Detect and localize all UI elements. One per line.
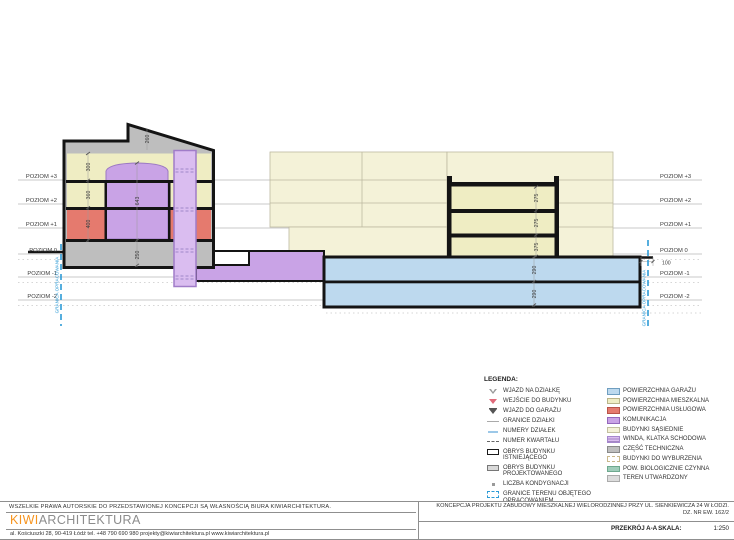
- level-label: POZIOM +2: [26, 198, 57, 204]
- titleblock-top-rule: [0, 501, 734, 502]
- legend-item: NUMERY DZIAŁEK: [486, 428, 608, 435]
- legend-item-label: WEJŚCIE DO BUDYNKU: [500, 398, 595, 405]
- residential-area-swatch: [607, 398, 620, 405]
- legend-item: GRANICE DZIAŁKI: [486, 418, 608, 425]
- legend-item: WJAZD NA DZIAŁKĘ: [486, 388, 608, 395]
- company-address: al. Kościuszki 28, 90-419 Łódź tel. +48 …: [10, 531, 269, 537]
- garage-entry-icon: [486, 408, 500, 415]
- legend-item-label: TEREN UTWARDZONY: [620, 475, 715, 482]
- legend-item: POWIERZCHNIA USŁUGOWA: [607, 407, 732, 414]
- project-line-2: DZ. NR EW. 162/2: [419, 510, 729, 517]
- legend-item: WEJŚCIE DO BUDYNKU: [486, 398, 608, 405]
- legend-item-label: BUDYNKI SĄSIEDNIE: [620, 427, 715, 434]
- level-labels-right: POZIOM +3 POZIOM +2 POZIOM +1 POZIOM 0 P…: [660, 174, 691, 300]
- legend-item: BUDYNKI DO WYBURZENIA: [607, 456, 732, 463]
- dim-garage-l2: 290: [532, 290, 538, 299]
- titleblock-left-rule-2: [6, 529, 416, 530]
- legend-item: POWIERZCHNIA MIESZKALNA: [607, 398, 732, 405]
- dim-left-atrium: 643: [135, 197, 141, 206]
- project-description: KONCEPCJA PROJEKTU ZABUDOWY MIESZKALNEJ …: [419, 503, 729, 517]
- elevator-shaft: [174, 151, 196, 287]
- sheet-name: PRZEKRÓJ A-A: [611, 525, 657, 532]
- dim-right-f3: 375: [534, 243, 540, 252]
- architectural-sheet: { "drawing": { "levels": ["POZIOM +3", "…: [0, 0, 734, 540]
- legend-item: WJAZD DO GARAŻU: [486, 408, 608, 415]
- storey-count-icon: [486, 481, 500, 488]
- level-label: POZIOM +1: [660, 222, 691, 228]
- level-label: POZIOM -1: [27, 271, 57, 277]
- legend-item-label: POWIERZCHNIA GARAŻU: [620, 388, 715, 395]
- plot-boundary-line-icon: [486, 418, 500, 425]
- neighbour-buildings-swatch: [607, 427, 620, 434]
- garage-area-swatch: [607, 388, 620, 395]
- level-label: POZIOM 0: [660, 248, 688, 254]
- legend-item: LICZBA KONDYGNACJI: [486, 481, 608, 488]
- circulation-swatch: [607, 417, 620, 424]
- dim-garage-l1: 290: [532, 266, 538, 275]
- existing-building-outline-icon: [486, 449, 500, 456]
- level-label: POZIOM +3: [26, 174, 57, 180]
- right-building: [447, 176, 559, 257]
- legend-item: TEREN UTWARDZONY: [607, 475, 732, 482]
- level-labels-left: POZIOM +3 POZIOM +2 POZIOM +1 POZIOM 0 P…: [26, 174, 57, 300]
- scale-label: SKALA:: [658, 525, 681, 532]
- titleblock-right-rule: [418, 521, 734, 522]
- legend-item-label: OBRYS BUDYNKU ISTNIEJĄCEGO: [500, 449, 595, 462]
- legend-item-label: POWIERZCHNIA MIESZKALNA: [620, 398, 715, 405]
- company-logo: KIWIARCHITEKTURA: [10, 513, 141, 527]
- dim-right-f1: 275: [534, 194, 540, 203]
- legend-item-label: KOMUNIKACJA: [620, 417, 715, 424]
- neighbour-buildings: [270, 152, 613, 257]
- designed-building-outline-icon: [486, 465, 500, 472]
- legend-item: KOMUNIKACJA: [607, 417, 732, 424]
- legend-item-label: LICZBA KONDYGNACJI: [500, 481, 595, 488]
- legend-item: WINDA, KLATKA SCHODOWA: [607, 436, 732, 443]
- boundary-label-right: GRANICA OPRACOWANIA: [642, 269, 647, 327]
- scale-value: 1:250: [714, 525, 729, 532]
- plot-numbers-icon: [486, 428, 500, 435]
- dim-left-f3: 300: [86, 163, 92, 172]
- garage: [324, 257, 640, 307]
- service-area-swatch: [607, 407, 620, 414]
- quarter-number-icon: [486, 438, 500, 445]
- technical-area-swatch: [607, 446, 620, 453]
- logo-architektura: ARCHITEKTURA: [39, 513, 141, 527]
- dim-offset: 100: [662, 261, 671, 267]
- legend-symbols-column: WJAZD NA DZIAŁKĘ WEJŚCIE DO BUDYNKU WJAZ…: [486, 388, 608, 508]
- demolition-buildings-swatch: [607, 456, 620, 463]
- legend-item-label: BUDYNKI DO WYBURZENIA: [620, 456, 715, 463]
- legend-item-label: WINDA, KLATKA SCHODOWA: [620, 436, 715, 443]
- legend-item-label: OBRYS BUDYNKU PROJEKTOWANEGO: [500, 465, 595, 478]
- biologically-active-swatch: [607, 466, 620, 473]
- copyright-text: WSZELKIE PRAWA AUTORSKIE DO PRZEDSTAWION…: [9, 504, 331, 510]
- legend-item-label: WJAZD NA DZIAŁKĘ: [500, 388, 595, 395]
- dim-left-f2: 360: [86, 191, 92, 200]
- building-entrance-icon: [486, 398, 500, 405]
- legend-item-label: CZĘŚĆ TECHNICZNA: [620, 446, 715, 453]
- legend-item-label: NUMER KWARTAŁU: [500, 438, 595, 445]
- sheet-title-row: PRZEKRÓJ A-A SKALA: 1:250: [419, 525, 729, 532]
- dim-right-f2: 275: [534, 219, 540, 228]
- level-label: POZIOM -2: [660, 294, 690, 300]
- legend-item-label: NUMERY DZIAŁEK: [500, 428, 595, 435]
- legend-item: BUDYNKI SĄSIEDNIE: [607, 427, 732, 434]
- legend-item: OBRYS BUDYNKU ISTNIEJĄCEGO: [486, 449, 608, 462]
- site-entry-icon: [486, 388, 500, 395]
- logo-kiwi: KIWI: [10, 513, 39, 527]
- hardened-ground-swatch: [607, 475, 620, 482]
- legend-item: CZĘŚĆ TECHNICZNA: [607, 446, 732, 453]
- legend-item: POW. BIOLOGICZNIE CZYNNA: [607, 466, 732, 473]
- level-label: POZIOM -2: [27, 294, 57, 300]
- underground-corridor: [196, 251, 324, 281]
- legend-item-label: POW. BIOLOGICZNIE CZYNNA: [620, 466, 715, 473]
- elevator-staircase-swatch: [607, 436, 620, 443]
- legend: LEGENDA: WJAZD NA DZIAŁKĘ WEJŚCIE DO BUD…: [484, 376, 732, 387]
- level-label: POZIOM 0: [29, 248, 57, 254]
- boundary-label-left: GRANICA OPRACOWANIA: [55, 256, 60, 314]
- legend-item: NUMER KWARTAŁU: [486, 438, 608, 445]
- dim-left-f1: 400: [86, 220, 92, 229]
- legend-item: OBRYS BUDYNKU PROJEKTOWANEGO: [486, 465, 608, 478]
- level-label: POZIOM -1: [660, 271, 690, 277]
- legend-item-label: GRANICE DZIAŁKI: [500, 418, 595, 425]
- legend-title: LEGENDA:: [484, 376, 732, 383]
- level-label: POZIOM +3: [660, 174, 691, 180]
- dim-left-roof: 260: [145, 135, 151, 144]
- titleblock-bottom-rule: [0, 539, 734, 540]
- level-label: POZIOM +2: [660, 198, 691, 204]
- legend-item-label: WJAZD DO GARAŻU: [500, 408, 595, 415]
- legend-item: POWIERZCHNIA GARAŻU: [607, 388, 732, 395]
- study-area-boundary-icon: [486, 491, 500, 498]
- level-label: POZIOM +1: [26, 222, 57, 228]
- project-line-1: KONCEPCJA PROJEKTU ZABUDOWY MIESZKALNEJ …: [419, 503, 729, 510]
- legend-areas-column: POWIERZCHNIA GARAŻU POWIERZCHNIA MIESZKA…: [607, 388, 732, 485]
- legend-item-label: POWIERZCHNIA USŁUGOWA: [620, 407, 715, 414]
- dim-left-base: 250: [135, 251, 141, 260]
